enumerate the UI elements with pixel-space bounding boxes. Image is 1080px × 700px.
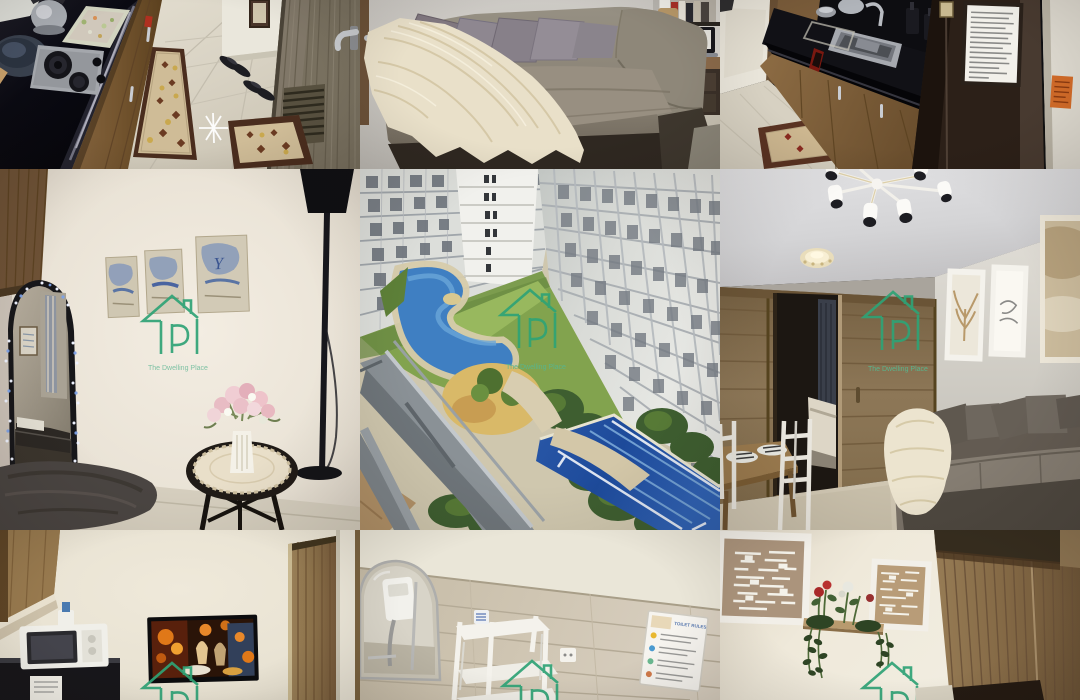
svg-text:The Dwelling Place: The Dwelling Place: [506, 364, 566, 371]
svg-text:The Dwelling Place: The Dwelling Place: [148, 365, 208, 372]
svg-text:The Dwelling Place: The Dwelling Place: [868, 366, 928, 373]
